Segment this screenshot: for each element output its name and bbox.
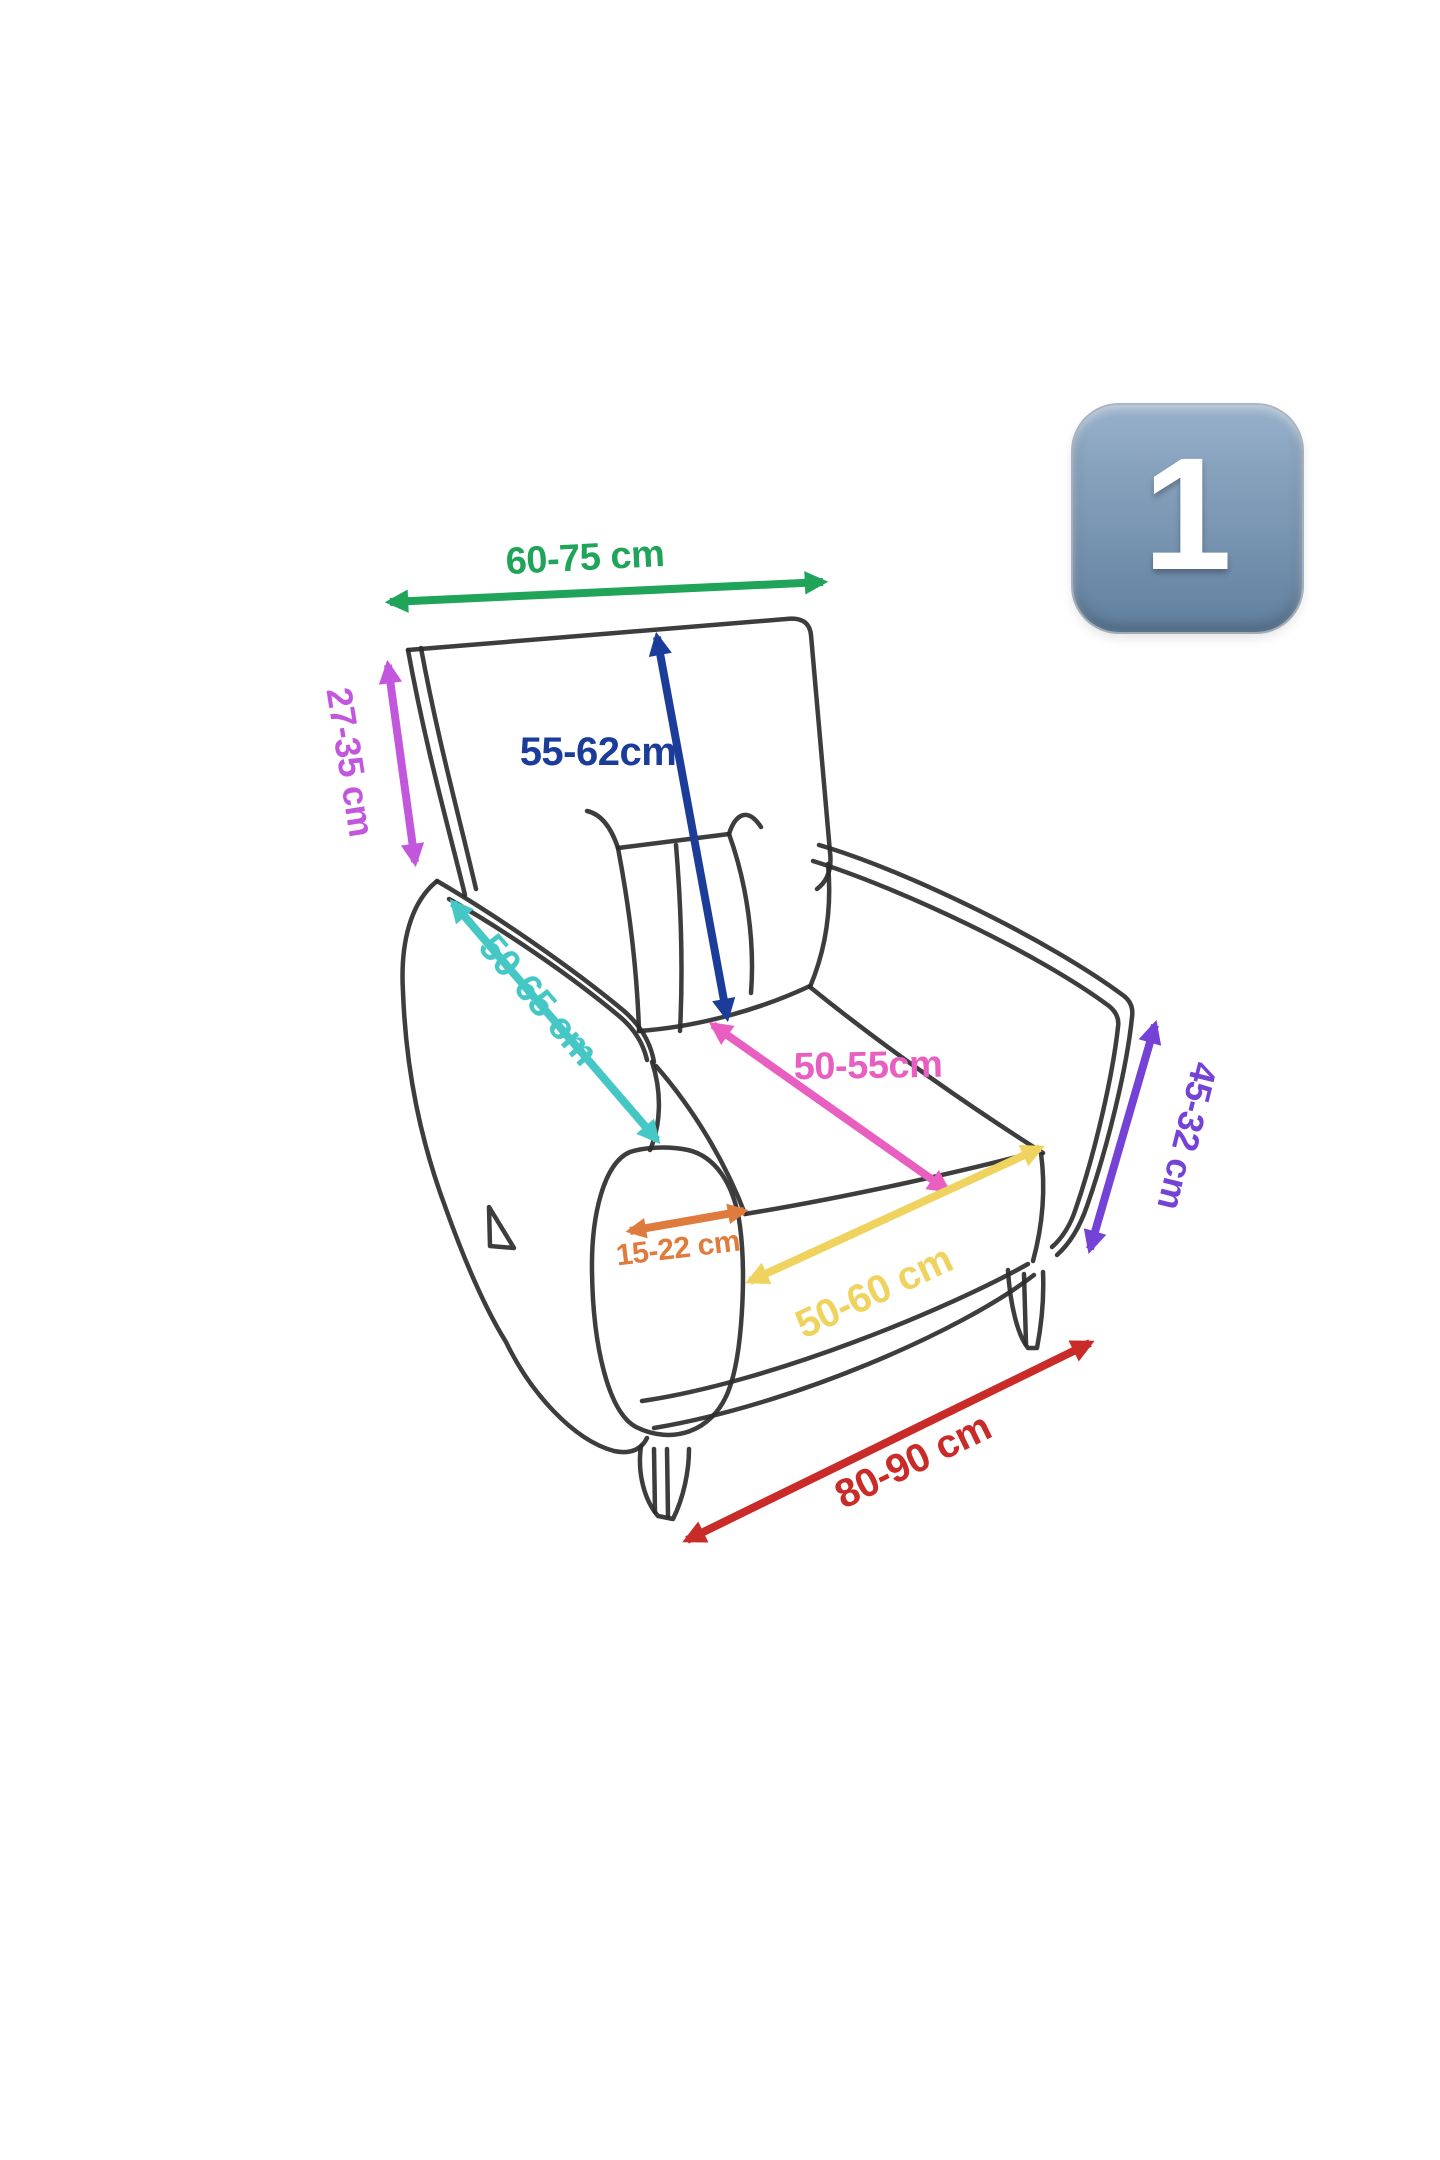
pillow-left-seam [618, 848, 639, 1031]
back-left-leg [489, 1207, 514, 1248]
label-backrest-height: 55-62cm [520, 732, 677, 772]
arrow-base-width [687, 1343, 1090, 1540]
front-left-leg-seam-2 [667, 1449, 668, 1516]
label-seat-depth: 50-55cm [793, 1046, 942, 1087]
arrow-backrest-height [657, 637, 727, 1017]
index-badge-number: 1 [1143, 434, 1232, 594]
measurement-diagram-page: 60-75 cm 27-35 cm 55-62cm 50-65 cm 50-55… [0, 0, 1440, 2160]
armchair-diagram [0, 0, 1440, 2160]
index-badge: 1 [1073, 405, 1302, 632]
backrest-left-edge-inner [421, 648, 476, 889]
armchair-sketch [403, 619, 1133, 1519]
arrow-side-front-height [1090, 1025, 1155, 1249]
pillow-right-seam [729, 834, 752, 993]
pillow-middle-seam [676, 845, 681, 1031]
front-right-leg-seam [1024, 1274, 1026, 1344]
label-back-top-width: 60-75 cm [505, 535, 665, 581]
left-arm-front-face [592, 1148, 743, 1435]
measurement-arrows [388, 582, 1155, 1540]
seat-front-right-edge [1033, 1153, 1043, 1261]
arrow-back-top-width [390, 582, 823, 602]
pillow-top-seam [618, 834, 729, 848]
pillow-left-wing [587, 811, 618, 848]
arrow-back-side-height [388, 665, 415, 862]
front-left-leg-seam-1 [654, 1449, 655, 1512]
pillow-right-wing [729, 815, 761, 834]
front-left-leg [640, 1446, 689, 1519]
seat-front-edge [745, 1151, 1039, 1214]
